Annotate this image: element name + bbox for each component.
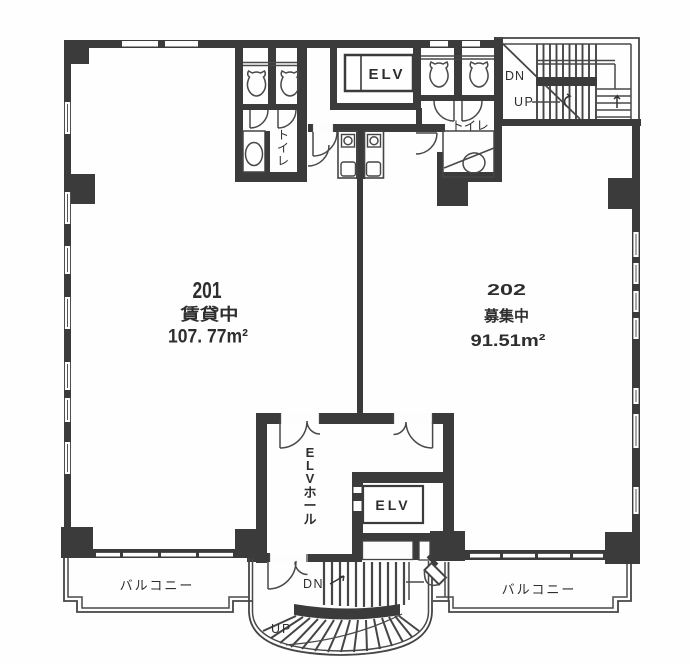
svg-text:ト: ト <box>277 128 289 142</box>
svg-text:レ: レ <box>277 154 289 168</box>
svg-text:91.51m²: 91.51m² <box>471 331 546 350</box>
svg-text:バルコニー: バルコニー <box>120 578 195 593</box>
svg-text:UP: UP <box>514 95 534 109</box>
svg-text:107. 77m²: 107. 77m² <box>168 327 248 348</box>
svg-text:V: V <box>306 471 315 486</box>
svg-text:ELV: ELV <box>375 497 410 513</box>
svg-text:ー: ー <box>303 498 316 513</box>
svg-text:ELV: ELV <box>368 66 405 83</box>
svg-text:DN: DN <box>303 577 324 591</box>
svg-text:UP: UP <box>271 622 292 636</box>
svg-text:202: 202 <box>487 282 526 299</box>
svg-text:募集中: 募集中 <box>483 307 529 325</box>
svg-text:201: 201 <box>193 277 222 303</box>
svg-text:ル: ル <box>303 512 316 527</box>
svg-text:イ: イ <box>277 141 289 155</box>
svg-text:DN: DN <box>505 69 525 83</box>
svg-text:バルコニー: バルコニー <box>502 582 577 597</box>
svg-text:賃貸中: 賃貸中 <box>179 304 238 324</box>
